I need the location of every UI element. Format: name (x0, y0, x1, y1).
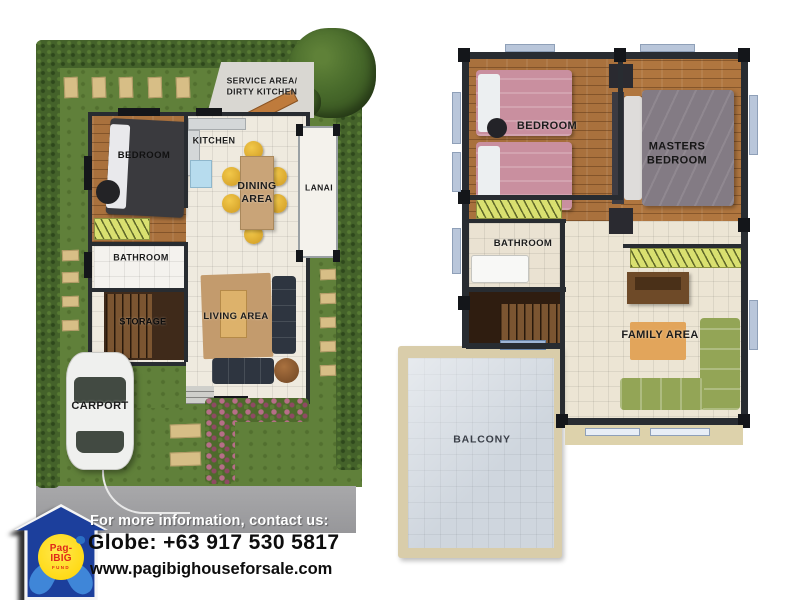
flyer-canvas: SERVICE AREA/ DIRTY KITCHEN KITCHEN BEDR… (0, 0, 800, 600)
footer-phone-line: Globe: +63 917 530 5817 (88, 531, 339, 555)
logo-text: FUND (52, 565, 70, 570)
logo-text: IBIG (50, 554, 71, 564)
footer-website: www.pagibighouseforsale.com (90, 560, 332, 579)
footer-info-line: For more information, contact us: (90, 513, 329, 529)
footer: Pag- IBIG FUND For more information, con… (0, 0, 800, 600)
logo-bird-icon (76, 536, 85, 544)
